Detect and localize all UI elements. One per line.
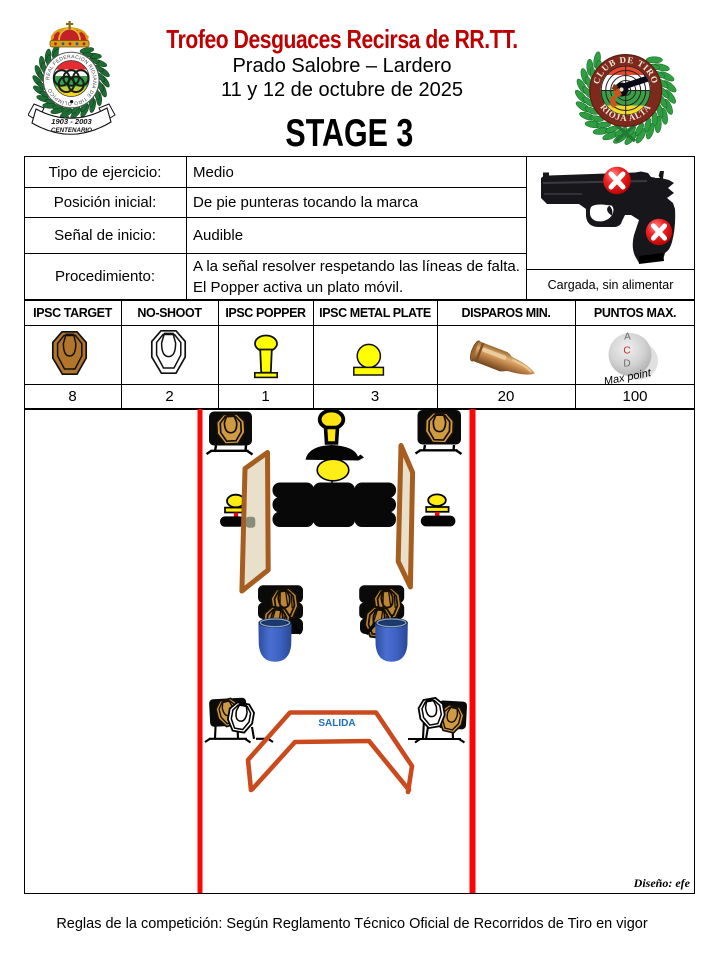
svg-text:C: C [623,346,630,357]
svg-text:SALIDA: SALIDA [318,718,355,729]
svg-text:D: D [623,359,630,370]
svg-text:A: A [624,332,631,343]
svg-text:CENTENARIO: CENTENARIO [51,127,92,134]
svg-text:1903 - 2003: 1903 - 2003 [51,117,92,126]
